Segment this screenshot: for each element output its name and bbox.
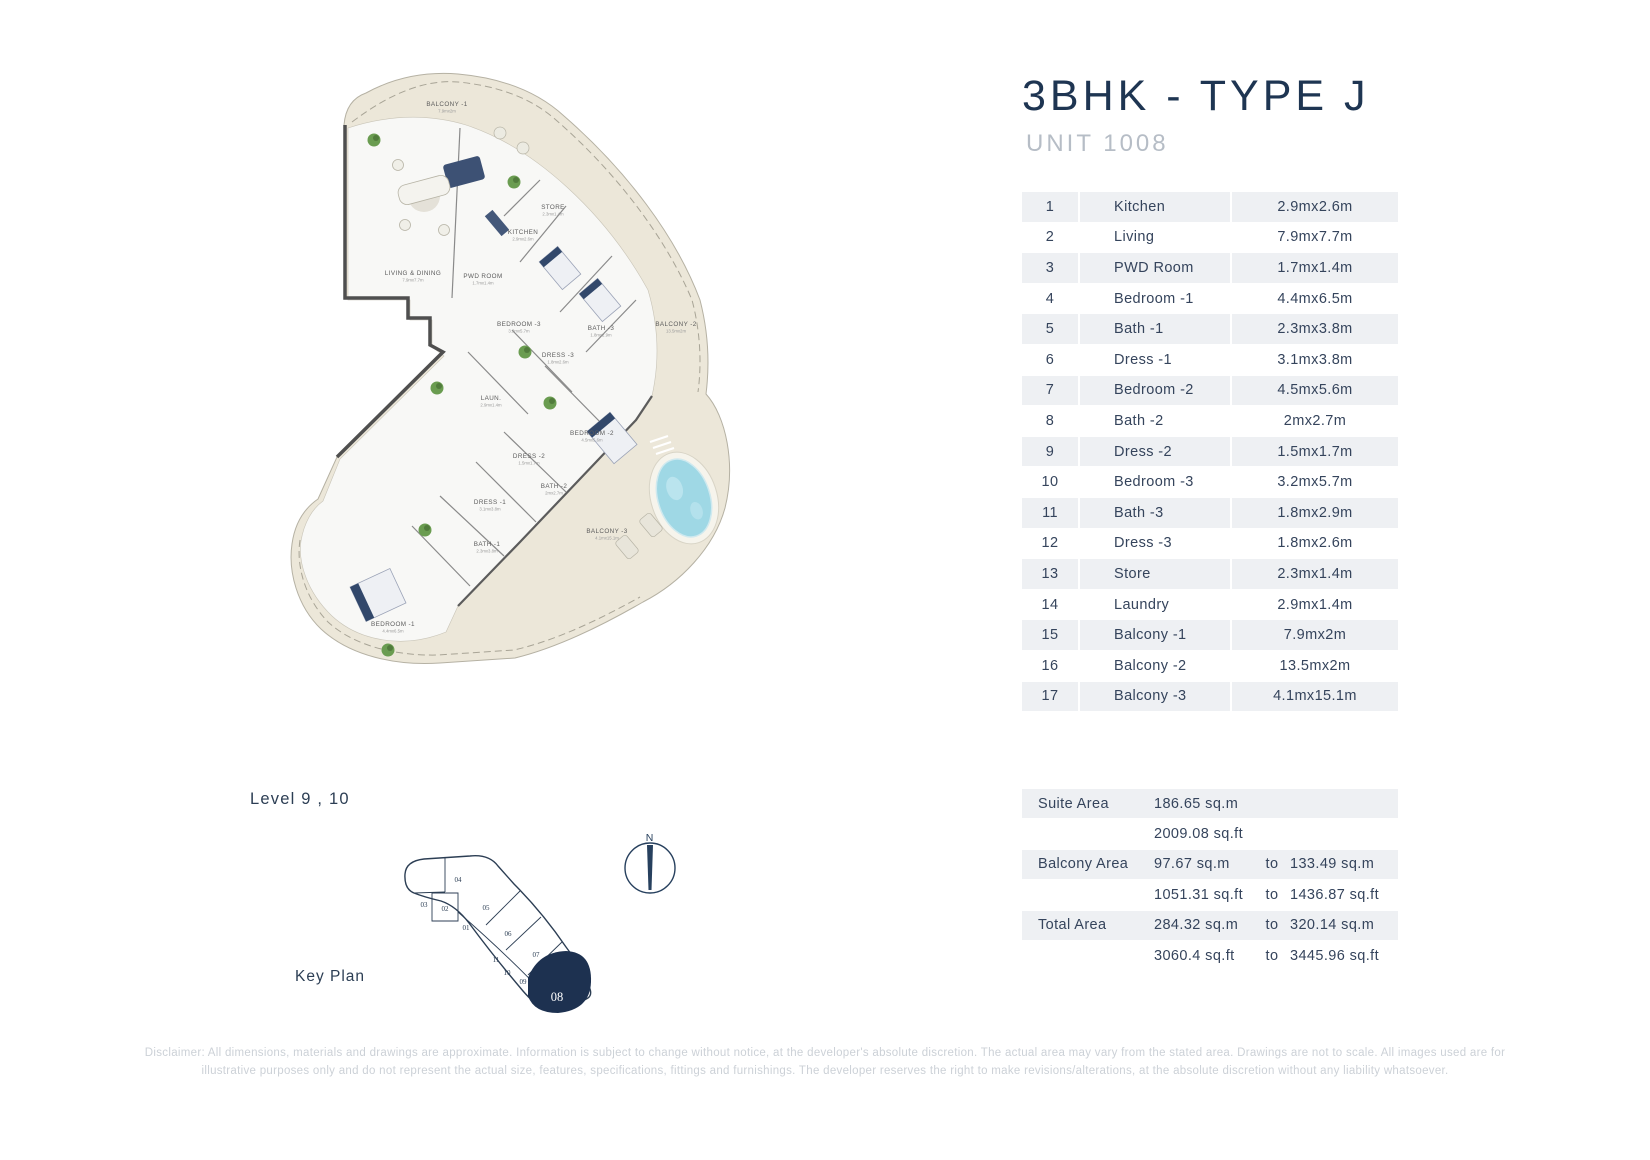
area-table-row: 2009.08 sq.ft — [1022, 819, 1398, 848]
rooms-table-cell-dims: 1.8mx2.6m — [1232, 529, 1398, 559]
plan-label-dress-3: DRESS -3 — [542, 352, 574, 359]
rooms-table-cell-name: Living — [1080, 223, 1230, 253]
plan-dims-dress-1: 3.1mx3.8m — [479, 507, 501, 512]
plan-label-bath-3: BATH -3 — [588, 325, 615, 332]
plan-label-store: STORE — [541, 204, 565, 211]
level-label: Level 9 , 10 — [250, 790, 350, 809]
plan-dims-laundry: 2.9mx1.4m — [480, 403, 502, 408]
compass-north-label: N — [646, 832, 655, 844]
rooms-table-cell-no: 15 — [1022, 620, 1078, 650]
plan-dims-bedroom-1: 4.4mx6.5m — [382, 629, 404, 634]
area-table-row: Total Area284.32 sq.mto320.14 sq.m — [1022, 911, 1398, 940]
rooms-table-cell-name: Bath -1 — [1080, 314, 1230, 344]
rooms-table-cell-no: 13 — [1022, 559, 1078, 589]
rooms-table-cell-dims: 2.9mx2.6m — [1232, 192, 1398, 222]
rooms-table-cell-no: 8 — [1022, 406, 1078, 436]
plan-label-balcony-3: BALCONY -3 — [586, 528, 627, 535]
plan-dims-dress-3: 1.8mx2.6m — [547, 360, 569, 365]
area-table-cell-to: to — [1258, 887, 1286, 903]
rooms-table-cell-no: 17 — [1022, 682, 1078, 712]
rooms-table-cell-no: 3 — [1022, 253, 1078, 283]
rooms-table-cell-name: Balcony -2 — [1080, 651, 1230, 681]
rooms-table-cell-dims: 13.5mx2m — [1232, 651, 1398, 681]
key-plan-unit-02: 02 — [442, 905, 450, 913]
area-table-cell-v1: 2009.08 sq.ft — [1146, 826, 1258, 842]
plan-dims-bedroom-2: 4.5mx5.6m — [581, 438, 603, 443]
plan-dims-bath-1: 2.3mx3.8m — [476, 549, 498, 554]
plan-dims-dress-2: 1.5mx1.7m — [518, 461, 540, 466]
plan-dims-bedroom-3: 3.2mx5.7m — [508, 329, 530, 334]
plan-dims-balcony-1: 7.9mx2m — [438, 109, 456, 114]
plan-label-bath-2: BATH -2 — [541, 483, 568, 490]
area-table-cell-v2: 1436.87 sq.ft — [1286, 887, 1398, 903]
unit-number: UNIT 1008 — [1026, 130, 1169, 158]
area-table-cell-to: to — [1258, 948, 1286, 964]
compass: N — [620, 830, 684, 896]
plan-label-bedroom-3: BEDROOM -3 — [497, 321, 541, 328]
area-table-cell-label: Suite Area — [1022, 796, 1146, 812]
rooms-table-cell-no: 16 — [1022, 651, 1078, 681]
key-plan-unit-08-label: 08 — [551, 990, 564, 1004]
rooms-table-cell-name: Bath -2 — [1080, 406, 1230, 436]
key-plan-caption: Key Plan — [295, 968, 365, 986]
area-table-cell-v2: 3445.96 sq.ft — [1286, 948, 1398, 964]
plan-label-dress-1: DRESS -1 — [474, 499, 506, 506]
rooms-table-cell-dims: 4.5mx5.6m — [1232, 376, 1398, 406]
plan-label-living-dining: LIVING & DINING — [385, 270, 441, 277]
rooms-table-cell-name: Bath -3 — [1080, 498, 1230, 528]
rooms-table-cell-name: Bedroom -2 — [1080, 376, 1230, 406]
rooms-table-cell-name: Laundry — [1080, 590, 1230, 620]
plan-label-bedroom-2: BEDROOM -2 — [570, 430, 614, 437]
area-table-cell-v2: 133.49 sq.m — [1286, 856, 1398, 872]
rooms-table-cell-no: 10 — [1022, 467, 1078, 497]
area-table-row: 3060.4 sq.ftto3445.96 sq.ft — [1022, 941, 1398, 970]
rooms-table-cell-name: Bedroom -3 — [1080, 467, 1230, 497]
rooms-table-cell-no: 1 — [1022, 192, 1078, 222]
plan-label-bedroom-1: BEDROOM -1 — [371, 621, 415, 628]
rooms-table-cell-dims: 1.5mx1.7m — [1232, 437, 1398, 467]
key-plan-unit-03: 03 — [421, 901, 429, 909]
area-table-cell-v1: 186.65 sq.m — [1146, 796, 1258, 812]
plan-dims-living-dining: 7.9mx7.7m — [402, 278, 424, 283]
disclaimer: Disclaimer: All dimensions, materials an… — [0, 1044, 1650, 1080]
rooms-table-cell-name: Dress -2 — [1080, 437, 1230, 467]
rooms-table-cell-no: 11 — [1022, 498, 1078, 528]
rooms-table-cell-dims: 3.1mx3.8m — [1232, 345, 1398, 375]
rooms-table-cell-no: 9 — [1022, 437, 1078, 467]
rooms-table-cell-no: 14 — [1022, 590, 1078, 620]
plan-dims-pwd-room: 1.7mx1.4m — [472, 281, 494, 286]
area-table-row: 1051.31 sq.ftto1436.87 sq.ft — [1022, 880, 1398, 909]
plan-dims-balcony-2: 13.5mx2m — [666, 329, 686, 334]
rooms-table-cell-no: 7 — [1022, 376, 1078, 406]
rooms-table-cell-dims: 1.7mx1.4m — [1232, 253, 1398, 283]
rooms-table-cell-dims: 3.2mx5.7m — [1232, 467, 1398, 497]
rooms-table: 1Kitchen2.9mx2.6m2Living7.9mx7.7m3PWD Ro… — [1022, 192, 1398, 711]
rooms-table-cell-dims: 7.9mx2m — [1232, 620, 1398, 650]
rooms-table-cell-no: 12 — [1022, 529, 1078, 559]
rooms-table-cell-no: 2 — [1022, 223, 1078, 253]
floor-plan: BALCONY -17.9mx2mSTORE2.3mx1.4mKITCHEN2.… — [270, 55, 750, 685]
key-plan-unit-04: 04 — [455, 876, 463, 884]
area-table-cell-v2: 320.14 sq.m — [1286, 917, 1398, 933]
area-table-cell-label: Balcony Area — [1022, 856, 1146, 872]
rooms-table-cell-dims: 4.1mx15.1m — [1232, 682, 1398, 712]
key-plan-unit-01: 01 — [463, 924, 471, 932]
rooms-table-cell-name: Store — [1080, 559, 1230, 589]
area-table-cell-to: to — [1258, 856, 1286, 872]
rooms-table-cell-no: 4 — [1022, 284, 1078, 314]
rooms-table-cell-name: Bedroom -1 — [1080, 284, 1230, 314]
page-title: 3BHK - TYPE J — [1022, 72, 1370, 121]
rooms-table-cell-name: PWD Room — [1080, 253, 1230, 283]
plan-dims-kitchen: 2.9mx2.6m — [512, 237, 534, 242]
key-plan-unit-11: 11 — [493, 956, 500, 964]
disclaimer-line-1: Disclaimer: All dimensions, materials an… — [88, 1044, 1562, 1062]
area-table-cell-v1: 3060.4 sq.ft — [1146, 948, 1258, 964]
rooms-table-cell-name: Balcony -3 — [1080, 682, 1230, 712]
area-table: Suite Area186.65 sq.m2009.08 sq.ftBalcon… — [1022, 789, 1398, 970]
plan-dims-bath-2: 2mx2.7m — [545, 491, 563, 496]
rooms-table-cell-dims: 2.3mx3.8m — [1232, 314, 1398, 344]
rooms-table-cell-dims: 2.3mx1.4m — [1232, 559, 1398, 589]
rooms-table-cell-name: Balcony -1 — [1080, 620, 1230, 650]
plan-label-dress-2: DRESS -2 — [513, 453, 545, 460]
plan-label-pwd-room: PWD ROOM — [463, 273, 502, 280]
key-plan: 08 04030205010611071009 — [398, 850, 603, 1018]
rooms-table-cell-name: Kitchen — [1080, 192, 1230, 222]
plan-dims-balcony-3: 4.1mx15.1m — [595, 536, 619, 541]
key-plan-unit-07: 07 — [533, 951, 541, 959]
rooms-table-cell-dims: 1.8mx2.9m — [1232, 498, 1398, 528]
rooms-table-cell-name: Dress -1 — [1080, 345, 1230, 375]
rooms-table-cell-dims: 2mx2.7m — [1232, 406, 1398, 436]
plan-label-balcony-2: BALCONY -2 — [655, 321, 696, 328]
plan-label-balcony-1: BALCONY -1 — [426, 101, 467, 108]
disclaimer-line-2: illustrative purposes only and do not re… — [88, 1062, 1562, 1080]
area-table-cell-label: Total Area — [1022, 917, 1146, 933]
key-plan-unit-06: 06 — [505, 930, 513, 938]
rooms-table-cell-dims: 4.4mx6.5m — [1232, 284, 1398, 314]
brochure-page: BALCONY -17.9mx2mSTORE2.3mx1.4mKITCHEN2.… — [0, 0, 1650, 1160]
plan-label-laundry: LAUN. — [481, 395, 502, 402]
area-table-row: Suite Area186.65 sq.m — [1022, 789, 1398, 818]
key-plan-unit-05: 05 — [483, 904, 491, 912]
rooms-table-cell-dims: 2.9mx1.4m — [1232, 590, 1398, 620]
plan-label-bath-1: BATH -1 — [474, 541, 501, 548]
rooms-table-cell-no: 6 — [1022, 345, 1078, 375]
rooms-table-cell-dims: 7.9mx7.7m — [1232, 223, 1398, 253]
key-plan-unit-09: 09 — [520, 978, 528, 986]
rooms-table-cell-name: Dress -3 — [1080, 529, 1230, 559]
area-table-cell-to: to — [1258, 917, 1286, 933]
area-table-cell-v1: 97.67 sq.m — [1146, 856, 1258, 872]
area-table-row: Balcony Area97.67 sq.mto133.49 sq.m — [1022, 850, 1398, 879]
key-plan-unit-10: 10 — [504, 969, 512, 977]
compass-needle-icon — [647, 845, 653, 890]
area-table-cell-v1: 284.32 sq.m — [1146, 917, 1258, 933]
plan-dims-store: 2.3mx1.4m — [542, 212, 564, 217]
rooms-table-cell-no: 5 — [1022, 314, 1078, 344]
area-table-cell-v1: 1051.31 sq.ft — [1146, 887, 1258, 903]
plan-label-kitchen: KITCHEN — [508, 229, 538, 236]
plan-dims-bath-3: 1.8mx2.9m — [590, 333, 612, 338]
